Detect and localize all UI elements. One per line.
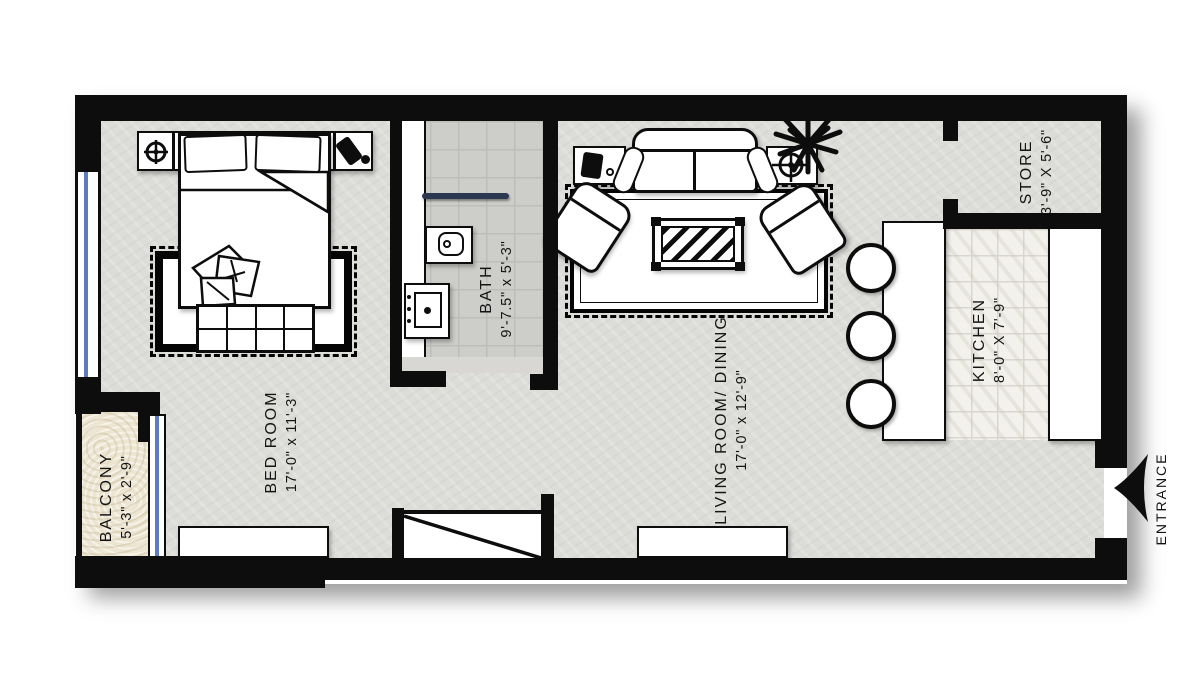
bath-wall-left-foot: [390, 371, 446, 387]
bedroom-label: BED ROOM 17'-0" x 11'-3": [262, 390, 302, 493]
bar-stool: [846, 243, 896, 293]
pillow-left: [183, 134, 247, 173]
table-leg: [735, 262, 745, 271]
bench-cell: [198, 306, 227, 329]
store-dims: 3'-9" X 5'-6": [1037, 129, 1057, 215]
coffee-table: [652, 218, 744, 270]
table-leg: [735, 217, 745, 226]
table-leg: [651, 217, 661, 226]
wall-balcony-top: [98, 392, 140, 412]
toilet: [425, 226, 473, 264]
towel-bar: [422, 193, 509, 199]
wardrobe-diagonal: [404, 514, 541, 558]
kitchen-dims: 8'-0" X 7'-9": [990, 297, 1010, 383]
bath-sink: [404, 283, 450, 339]
bedroom-dims: 17'-0" x 11'-3": [282, 390, 302, 493]
armchair-left-seat-line: [571, 198, 621, 232]
bedroom-name: BED ROOM: [262, 390, 282, 493]
table-leg: [651, 262, 661, 271]
balcony-name: BALCONY: [97, 452, 117, 542]
living-label: LIVING ROOM/ DINING 17'-0" x 12'-9": [712, 315, 752, 525]
sliding-door-glass-line: [155, 416, 159, 556]
bench-cell: [227, 329, 256, 352]
window-glass-line: [84, 172, 88, 377]
bench-cell: [227, 306, 256, 329]
wardrobe-bar-left: [392, 508, 404, 558]
throw-pillows-icon: [185, 238, 277, 310]
bath-wall-right-foot: [530, 374, 558, 390]
floor-plan: BED ROOM 17'-0" x 11'-3" BATH 9'-7.5" x …: [0, 0, 1200, 694]
table-lamp-icon: [580, 152, 603, 180]
bath-name: BATH: [477, 240, 497, 337]
sofa-cushion-divider: [693, 149, 696, 190]
pillow-right: [254, 134, 321, 173]
store-door-stub-bottom: [943, 199, 958, 215]
wall-top: [75, 95, 1127, 121]
kitchen-label: KITCHEN 8'-0" X 7'-9": [970, 297, 1010, 383]
bath-label: BATH 9'-7.5" x 5'-3": [477, 240, 517, 337]
balcony-label: BALCONY 5'-3" x 2'-9": [97, 452, 137, 542]
wall-right-upper: [1101, 95, 1127, 468]
wall-left-upper: [75, 95, 101, 172]
kitchen-store-wall: [943, 213, 1105, 229]
entrance-jamb-lower: [1095, 538, 1127, 564]
bedroom-dresser: [178, 526, 329, 558]
bench-cell: [256, 306, 285, 329]
toilet-flush-dot: [443, 240, 451, 248]
kitchen-counter-right: [1048, 221, 1104, 441]
sofa: [632, 128, 758, 193]
bath-wall-right: [543, 121, 558, 390]
sink-drain-dot: [424, 307, 431, 314]
balcony-sliding-door: [148, 414, 166, 558]
wall-bottom-main: [323, 558, 1107, 580]
living-name: LIVING ROOM/ DINING: [712, 315, 732, 525]
store-name: STORE: [1017, 129, 1037, 215]
bench-cell: [284, 306, 313, 329]
entrance-text: ENTRANCE: [1151, 452, 1171, 545]
bed-bench: [196, 304, 315, 353]
phone-dot-icon: [361, 155, 370, 164]
balcony-dims: 5'-3" x 2'-9": [117, 452, 137, 542]
living-console: [637, 526, 788, 558]
entrance-label: ENTRANCE: [1151, 452, 1171, 545]
lamp-dot-icon: [606, 168, 614, 176]
entrance-arrow-icon: [1112, 452, 1150, 524]
living-dims: 17'-0" x 12'-9": [732, 315, 752, 525]
alarm-clock-icon: [143, 139, 169, 165]
bath-dims: 9'-7.5" x 5'-3": [497, 240, 517, 337]
wardrobe-bar-right: [541, 494, 554, 558]
wardrobe: [404, 510, 541, 558]
bedroom-window: [75, 172, 101, 377]
sink-knob: [407, 319, 411, 323]
bench-cell: [198, 329, 227, 352]
wall-bottom-left: [75, 556, 325, 588]
bath-wall-left: [390, 121, 402, 373]
bench-cell: [284, 329, 313, 352]
bar-stool: [846, 311, 896, 361]
coffee-table-hatch: [661, 226, 735, 262]
bar-stool: [846, 379, 896, 429]
balcony-railing: [76, 412, 82, 558]
sink-knob: [407, 307, 411, 311]
sink-knob: [407, 295, 411, 299]
store-label: STORE 3'-9" X 5'-6": [1017, 129, 1057, 215]
bench-cell: [256, 329, 285, 352]
phone-icon: [335, 136, 363, 166]
armchair-right-seat-line: [769, 200, 819, 234]
kitchen-name: KITCHEN: [970, 297, 990, 383]
toilet-bowl: [438, 232, 464, 256]
nightstand-divider-left: [172, 133, 175, 169]
nightstand-divider-right: [333, 133, 336, 169]
store-door-stub-top: [943, 121, 958, 141]
